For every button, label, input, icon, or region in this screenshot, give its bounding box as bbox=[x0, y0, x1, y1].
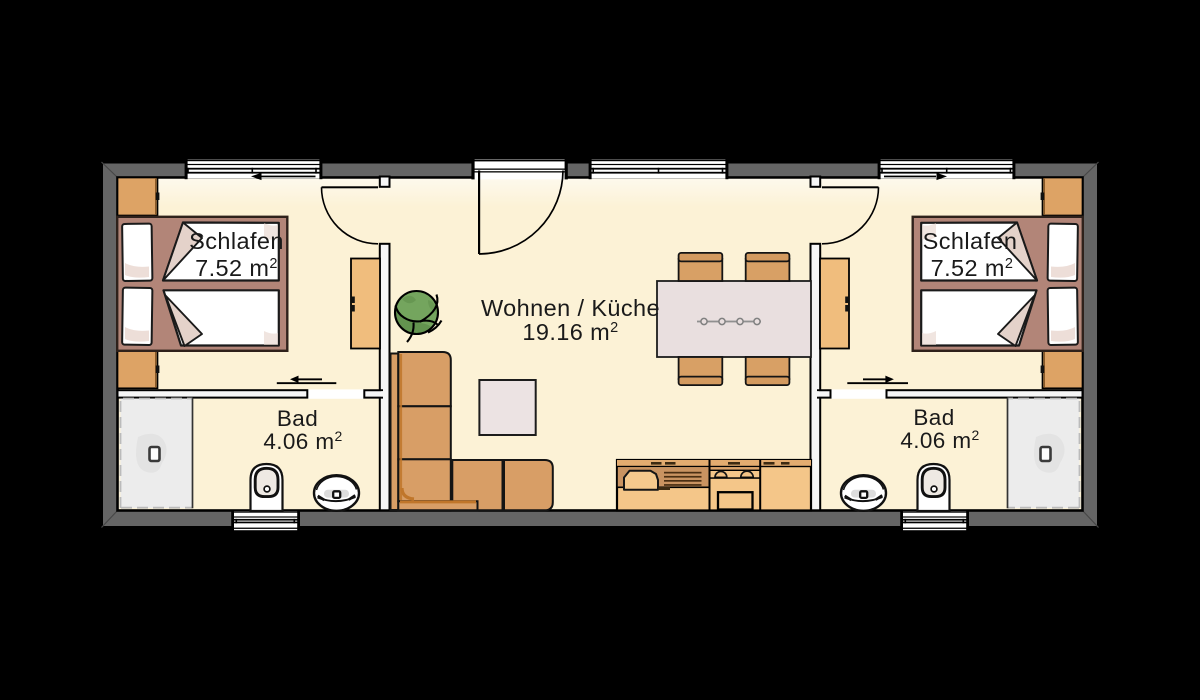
svg-text:4.06 m2: 4.06 m2 bbox=[263, 428, 342, 454]
svg-text:Schlafen: Schlafen bbox=[189, 228, 284, 254]
svg-text:Wohnen / Küche: Wohnen / Küche bbox=[481, 295, 660, 321]
svg-text:4.06 m2: 4.06 m2 bbox=[900, 427, 979, 453]
svg-text:19.16 m2: 19.16 m2 bbox=[522, 319, 618, 345]
svg-text:Bad: Bad bbox=[913, 405, 954, 430]
svg-text:Bad: Bad bbox=[277, 406, 318, 431]
svg-text:7.52 m2: 7.52 m2 bbox=[195, 255, 278, 281]
svg-text:Schlafen: Schlafen bbox=[923, 228, 1018, 254]
svg-text:7.52 m2: 7.52 m2 bbox=[931, 255, 1014, 281]
